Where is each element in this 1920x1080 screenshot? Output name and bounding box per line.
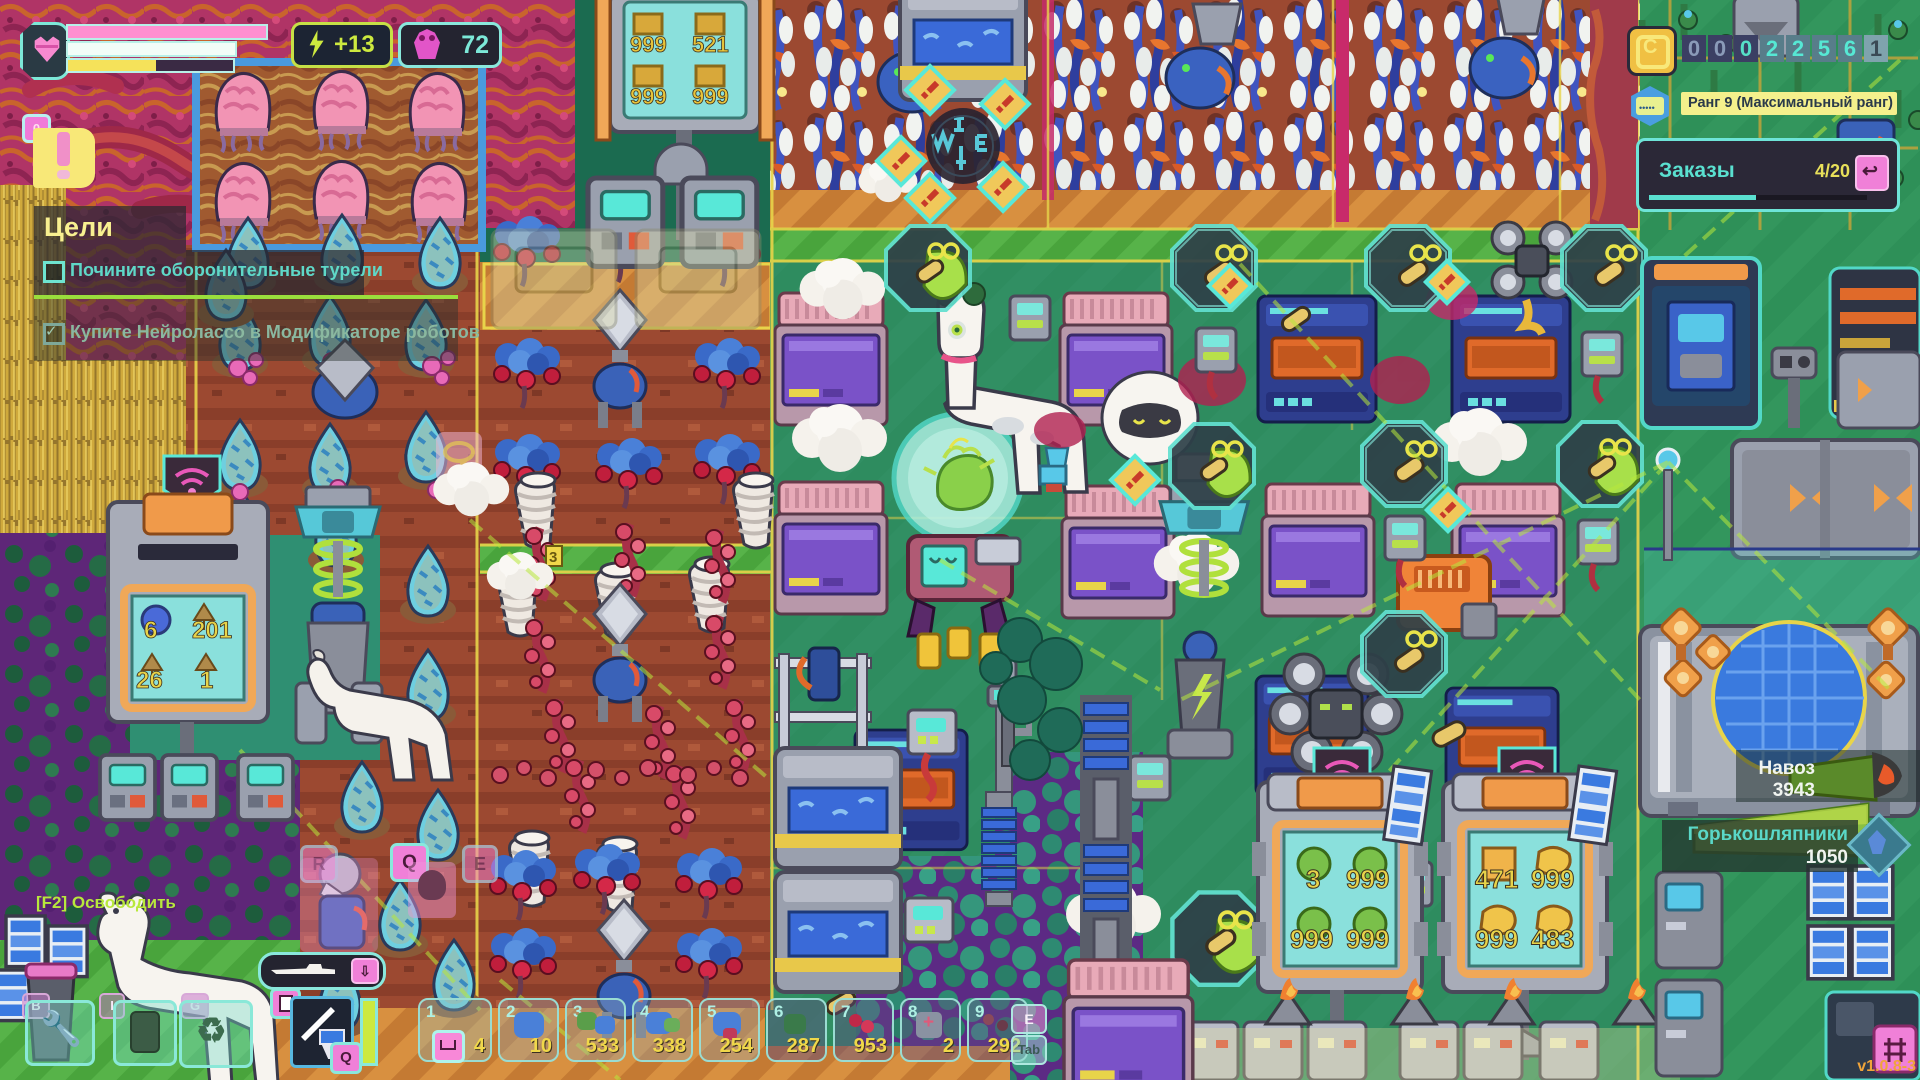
svg-text:999: 999: [1475, 924, 1518, 954]
svg-text:521: 521: [692, 32, 729, 57]
svg-text:999: 999: [1290, 924, 1333, 954]
svg-text:1: 1: [200, 667, 213, 694]
svg-text:999: 999: [1346, 864, 1389, 894]
svg-text:999: 999: [692, 84, 729, 109]
svg-text:483: 483: [1531, 924, 1574, 954]
svg-text:201: 201: [192, 617, 232, 644]
svg-text:471: 471: [1475, 864, 1518, 894]
svg-text:999: 999: [1531, 864, 1574, 894]
svg-text:3: 3: [549, 549, 557, 566]
svg-text:999: 999: [630, 32, 667, 57]
svg-text:999: 999: [1346, 924, 1389, 954]
svg-text:999: 999: [630, 84, 667, 109]
svg-text:26: 26: [136, 667, 163, 694]
svg-text:3: 3: [1306, 864, 1320, 894]
svg-text:6: 6: [144, 617, 157, 644]
